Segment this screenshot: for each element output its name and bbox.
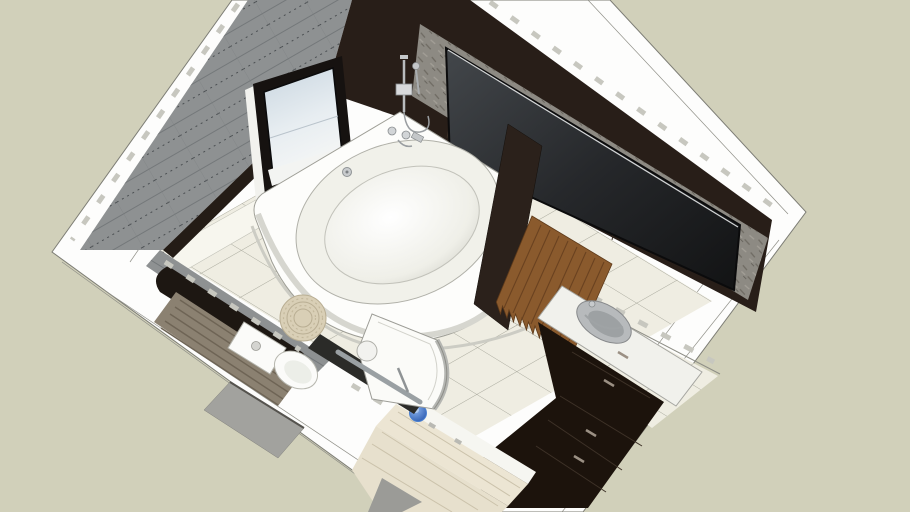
shower-head — [357, 341, 377, 361]
sink-faucet — [589, 301, 595, 307]
flush-button — [252, 342, 261, 351]
wicker-pouf — [280, 295, 326, 341]
bathroom-3d-render — [0, 0, 910, 512]
model-viewport[interactable] — [0, 0, 910, 512]
